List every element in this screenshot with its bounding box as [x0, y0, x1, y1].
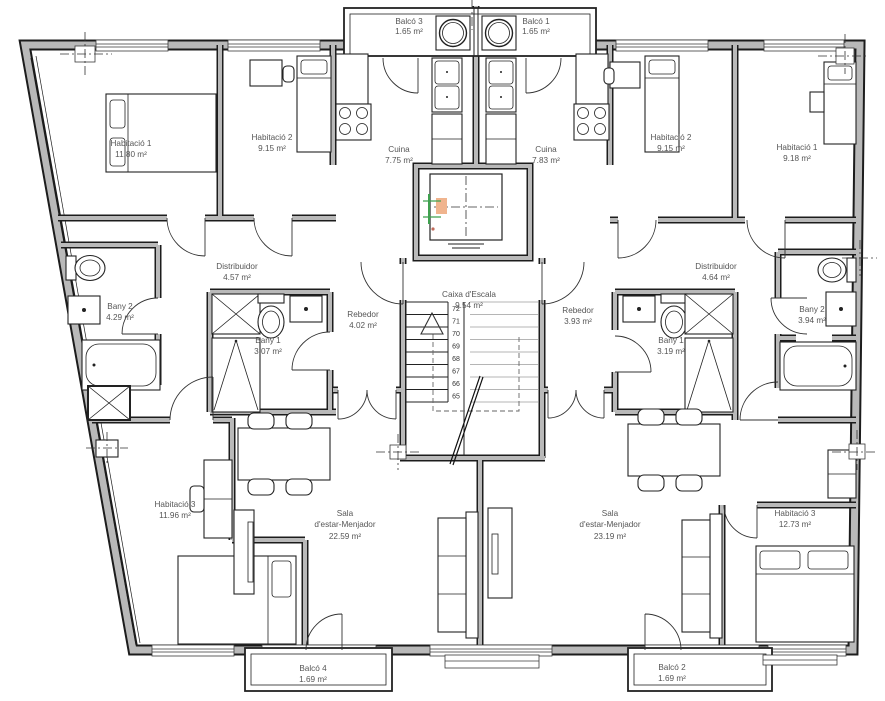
- elevator: [423, 174, 502, 248]
- chair: [676, 409, 702, 425]
- chair: [676, 475, 702, 491]
- balcony-bottom-right: [628, 648, 772, 691]
- chair: [286, 479, 312, 495]
- toilet: [818, 258, 856, 282]
- svg-text:Balcó 2: Balcó 2: [658, 663, 686, 672]
- svg-text:Distribuidor: Distribuidor: [216, 262, 258, 271]
- svg-text:3.19 m²: 3.19 m²: [657, 347, 685, 356]
- svg-text:7.75 m²: 7.75 m²: [385, 156, 413, 165]
- svg-text:Cuina: Cuina: [535, 145, 557, 154]
- balcony-top: [344, 8, 596, 56]
- dining-table: [628, 424, 720, 476]
- chair: [248, 413, 274, 429]
- stove-icon: [336, 104, 371, 140]
- bathtub: [780, 342, 856, 390]
- chair: [638, 409, 664, 425]
- bathtub: [82, 340, 160, 390]
- toilet: [661, 294, 687, 338]
- svg-text:Bany 2: Bany 2: [799, 305, 825, 314]
- tv-unit: [234, 510, 254, 594]
- kitchen-sink: [432, 58, 462, 112]
- svg-text:Distribuidor: Distribuidor: [695, 262, 737, 271]
- stove-icon: [574, 104, 609, 140]
- tv-unit: [488, 508, 512, 598]
- svg-text:d'estar-Menjador: d'estar-Menjador: [579, 520, 640, 529]
- shower: [212, 294, 260, 334]
- svg-text:Habitació 3: Habitació 3: [155, 500, 196, 509]
- svg-text:3.93 m²: 3.93 m²: [564, 317, 592, 326]
- chair: [638, 475, 664, 491]
- bathroom-sink: [623, 296, 655, 322]
- svg-text:1.69 m²: 1.69 m²: [658, 674, 686, 683]
- svg-text:Balcó 1: Balcó 1: [522, 17, 550, 26]
- svg-text:Habitació 2: Habitació 2: [252, 133, 293, 142]
- svg-text:65: 65: [452, 394, 460, 401]
- svg-text:9.54 m²: 9.54 m²: [455, 301, 483, 310]
- svg-text:Bany 1: Bany 1: [255, 336, 281, 345]
- svg-text:11.96 m²: 11.96 m²: [159, 511, 191, 520]
- svg-text:Caixa d'Escala: Caixa d'Escala: [442, 290, 496, 299]
- svg-text:Habitació 1: Habitació 1: [111, 139, 152, 148]
- room-label-balco3: Balcó 3 1.65 m²: [395, 17, 423, 36]
- floor-plan: 72 71 70 69 68 67 66 65: [0, 0, 885, 701]
- chair: [283, 66, 294, 82]
- svg-text:3.94 m²: 3.94 m²: [798, 316, 826, 325]
- kitchen-counter: [576, 54, 608, 104]
- nightstand: [810, 92, 824, 112]
- svg-text:Rebedor: Rebedor: [562, 306, 594, 315]
- bathroom-sink: [68, 296, 100, 324]
- kitchen-counter: [336, 54, 368, 104]
- chair: [286, 413, 312, 429]
- svg-text:Habitació 3: Habitació 3: [775, 509, 816, 518]
- svg-text:9.15 m²: 9.15 m²: [657, 144, 685, 153]
- chair: [248, 479, 274, 495]
- sofa: [438, 512, 478, 638]
- svg-text:3.07 m²: 3.07 m²: [254, 347, 282, 356]
- bed: [297, 56, 331, 152]
- svg-text:23.19 m²: 23.19 m²: [594, 532, 627, 541]
- folding-wardrobe: [212, 338, 260, 412]
- bedroom-hab1-left: [106, 94, 216, 172]
- bed: [824, 62, 856, 144]
- svg-text:69: 69: [452, 344, 460, 351]
- svg-text:Cuina: Cuina: [388, 145, 410, 154]
- svg-text:Bany 1: Bany 1: [658, 336, 684, 345]
- floor-plan-svg: 72 71 70 69 68 67 66 65: [0, 0, 885, 701]
- dining-table: [238, 428, 330, 480]
- svg-text:9.18 m²: 9.18 m²: [783, 154, 811, 163]
- svg-text:22.59 m²: 22.59 m²: [329, 532, 362, 541]
- svg-text:Bany 2: Bany 2: [107, 302, 133, 311]
- bed: [106, 94, 216, 172]
- svg-text:4.29 m²: 4.29 m²: [106, 313, 134, 322]
- svg-text:Sala: Sala: [602, 509, 619, 518]
- svg-text:4.02 m²: 4.02 m²: [349, 321, 377, 330]
- svg-text:70: 70: [452, 331, 460, 338]
- sofa: [682, 514, 722, 638]
- svg-text:1.69 m²: 1.69 m²: [299, 675, 327, 684]
- svg-text:12.73 m²: 12.73 m²: [779, 520, 812, 529]
- svg-text:9.15 m²: 9.15 m²: [258, 144, 286, 153]
- kitchen-sink: [486, 58, 516, 112]
- desk: [250, 60, 282, 86]
- chair: [604, 68, 614, 84]
- svg-text:Habitació 2: Habitació 2: [651, 133, 692, 142]
- svg-text:Habitació 1: Habitació 1: [777, 143, 818, 152]
- toilet: [66, 256, 105, 281]
- toilet: [258, 294, 284, 338]
- svg-text:1.65 m²: 1.65 m²: [522, 27, 550, 36]
- svg-text:71: 71: [452, 319, 460, 326]
- svg-text:68: 68: [452, 356, 460, 363]
- svg-text:7.83 m²: 7.83 m²: [532, 156, 560, 165]
- svg-text:Balcó 3: Balcó 3: [395, 17, 423, 26]
- svg-text:Rebedor: Rebedor: [347, 310, 379, 319]
- washing-machine: [436, 16, 470, 50]
- svg-text:Sala: Sala: [337, 509, 354, 518]
- svg-text:Balcó 4: Balcó 4: [299, 664, 327, 673]
- svg-text:d'estar-Menjador: d'estar-Menjador: [314, 520, 375, 529]
- svg-text:66: 66: [452, 381, 460, 388]
- svg-text:4.57 m²: 4.57 m²: [223, 273, 251, 282]
- bathroom-sink: [826, 292, 856, 326]
- bathroom-sink: [290, 296, 322, 322]
- svg-text:4.64 m²: 4.64 m²: [702, 273, 730, 282]
- folding-wardrobe: [685, 338, 733, 412]
- svg-text:67: 67: [452, 369, 460, 376]
- svg-text:11.80 m²: 11.80 m²: [115, 150, 147, 159]
- bed: [756, 546, 854, 642]
- shower: [685, 294, 733, 334]
- washing-machine: [482, 16, 516, 50]
- room-label-balco1: Balcó 1 1.65 m²: [522, 17, 550, 36]
- svg-text:1.65 m²: 1.65 m²: [395, 27, 423, 36]
